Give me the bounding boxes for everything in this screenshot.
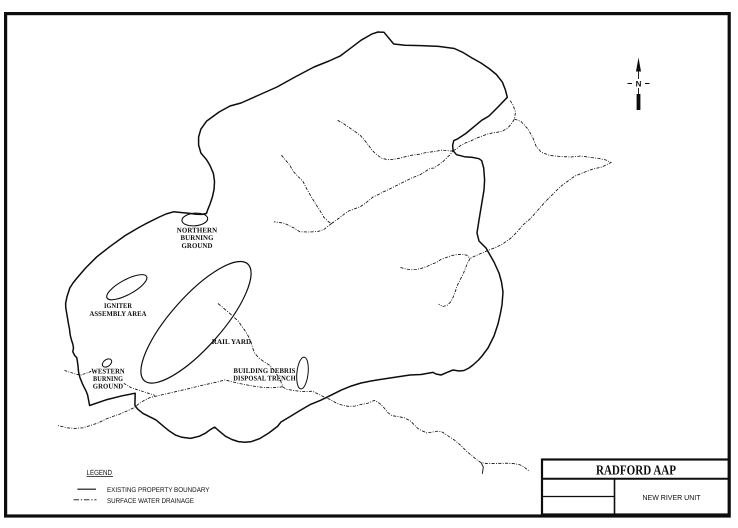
svg-text:LEGEND: LEGEND	[87, 468, 113, 477]
svg-text:RADFORD AAP: RADFORD AAP	[596, 463, 676, 478]
svg-text:GROUND: GROUND	[182, 242, 213, 250]
svg-text:RAIL YARD: RAIL YARD	[212, 338, 252, 346]
svg-text:ASSEMBLY AREA: ASSEMBLY AREA	[90, 310, 148, 318]
svg-text:SURFACE WATER DRAINAGE: SURFACE WATER DRAINAGE	[107, 498, 194, 505]
svg-text:NEW RIVER UNIT: NEW RIVER UNIT	[643, 493, 702, 502]
svg-text:EXISTING PROPERTY BOUNDARY: EXISTING PROPERTY BOUNDARY	[107, 487, 210, 494]
svg-text:DISPOSAL TRENCH: DISPOSAL TRENCH	[233, 374, 296, 382]
svg-text:GROUND: GROUND	[93, 383, 124, 391]
svg-text:N: N	[636, 80, 642, 89]
